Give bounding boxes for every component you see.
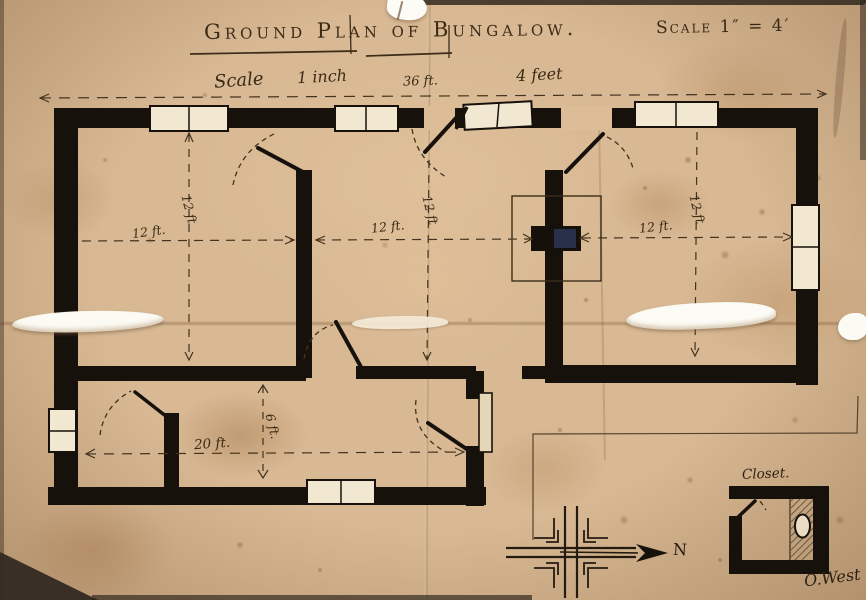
scanned-floor-plan: Ground Plan of Bungalow. Scale 1″ = 4′ S…	[0, 0, 866, 600]
aged-paper-background	[0, 0, 866, 600]
